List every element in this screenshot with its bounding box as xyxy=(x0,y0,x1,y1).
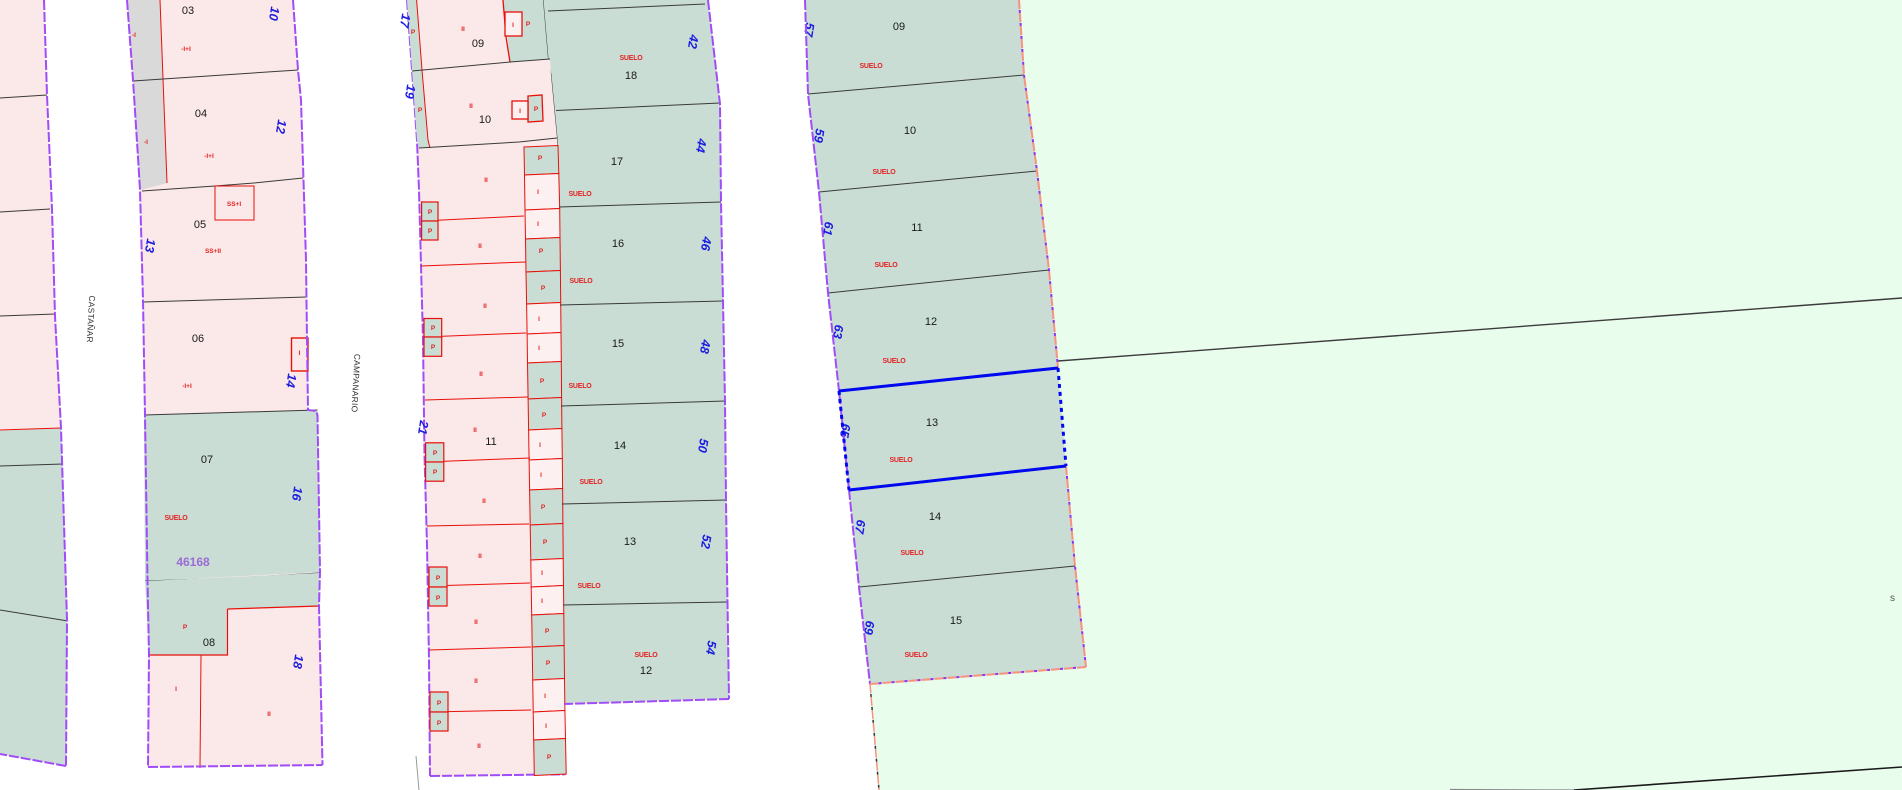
svg-text:-I+I: -I+I xyxy=(182,383,192,390)
svg-text:SUELO: SUELO xyxy=(900,550,924,557)
svg-text:21: 21 xyxy=(415,419,431,436)
svg-text:-I+I: -I+I xyxy=(181,46,191,53)
svg-text:SUELO: SUELO xyxy=(568,191,592,198)
svg-text:42: 42 xyxy=(685,33,701,50)
svg-text:P: P xyxy=(431,344,436,351)
svg-text:I: I xyxy=(544,693,546,700)
svg-text:16: 16 xyxy=(612,238,624,250)
svg-text:04: 04 xyxy=(195,108,207,120)
svg-text:14: 14 xyxy=(929,511,941,523)
svg-text:P: P xyxy=(436,575,441,582)
svg-text:I: I xyxy=(175,686,177,693)
svg-text:P: P xyxy=(543,539,548,546)
svg-text:11: 11 xyxy=(485,436,496,448)
svg-text:13: 13 xyxy=(624,536,636,548)
svg-text:SUELO: SUELO xyxy=(577,583,601,590)
svg-text:13: 13 xyxy=(926,417,938,429)
svg-text:P: P xyxy=(411,29,416,36)
svg-text:I: I xyxy=(519,108,521,115)
svg-text:SUELO: SUELO xyxy=(569,278,593,285)
svg-text:12: 12 xyxy=(925,316,937,328)
svg-text:SUELO: SUELO xyxy=(634,652,658,659)
svg-text:P: P xyxy=(541,285,546,292)
svg-text:48: 48 xyxy=(697,338,713,355)
svg-text:II: II xyxy=(267,711,271,718)
svg-text:SUELO: SUELO xyxy=(164,515,188,522)
svg-text:SUELO: SUELO xyxy=(579,479,603,486)
svg-text:P: P xyxy=(428,228,433,235)
svg-text:II: II xyxy=(474,619,478,626)
svg-text:SUELO: SUELO xyxy=(889,457,913,464)
svg-text:II: II xyxy=(478,243,482,250)
svg-text:P: P xyxy=(431,325,436,332)
svg-text:II: II xyxy=(483,303,487,310)
svg-text:II: II xyxy=(482,498,486,505)
svg-text:P: P xyxy=(433,450,438,457)
svg-text:II: II xyxy=(479,371,483,378)
svg-text:I: I xyxy=(538,316,540,323)
svg-text:P: P xyxy=(547,754,552,761)
svg-text:50: 50 xyxy=(695,438,711,454)
svg-text:I: I xyxy=(541,598,543,605)
svg-text:II: II xyxy=(473,427,477,434)
svg-text:15: 15 xyxy=(612,338,624,350)
svg-text:17: 17 xyxy=(611,156,623,168)
svg-text:-I+I: -I+I xyxy=(204,153,214,160)
svg-text:I: I xyxy=(299,350,301,357)
svg-text:SS+I: SS+I xyxy=(227,201,241,208)
svg-text:10: 10 xyxy=(266,6,282,22)
svg-text:SUELO: SUELO xyxy=(859,63,883,70)
svg-text:SS+II: SS+II xyxy=(205,248,221,255)
svg-text:II: II xyxy=(461,26,465,33)
svg-text:P: P xyxy=(542,412,547,419)
svg-text:P: P xyxy=(539,248,544,255)
svg-text:SUELO: SUELO xyxy=(872,169,896,176)
svg-text:-I: -I xyxy=(144,139,148,146)
svg-text:P: P xyxy=(526,21,531,28)
svg-text:P: P xyxy=(538,155,543,162)
svg-text:II: II xyxy=(474,678,478,685)
svg-text:P: P xyxy=(437,720,442,727)
svg-text:03: 03 xyxy=(182,5,194,17)
svg-text:09: 09 xyxy=(893,21,905,33)
svg-text:10: 10 xyxy=(904,125,916,137)
svg-text:09: 09 xyxy=(472,38,484,50)
svg-text:10: 10 xyxy=(479,114,491,126)
svg-text:06: 06 xyxy=(192,333,204,345)
svg-text:P: P xyxy=(545,628,550,635)
svg-text:P: P xyxy=(437,700,442,707)
svg-text:P: P xyxy=(418,107,423,114)
svg-text:I: I xyxy=(539,442,541,449)
svg-text:P: P xyxy=(433,469,438,476)
svg-text:II: II xyxy=(477,743,481,750)
svg-text:18: 18 xyxy=(625,70,637,82)
svg-text:SUELO: SUELO xyxy=(874,262,898,269)
svg-text:19: 19 xyxy=(402,84,418,100)
svg-text:s: s xyxy=(1890,593,1895,604)
svg-text:II: II xyxy=(484,177,488,184)
svg-text:I: I xyxy=(538,345,540,352)
svg-text:54: 54 xyxy=(703,640,719,656)
svg-text:P: P xyxy=(436,595,441,602)
svg-text:I: I xyxy=(537,189,539,196)
svg-text:14: 14 xyxy=(283,373,299,389)
svg-text:I: I xyxy=(545,723,547,730)
svg-text:18: 18 xyxy=(290,654,306,670)
svg-text:05: 05 xyxy=(194,219,206,231)
svg-text:P: P xyxy=(540,378,545,385)
svg-text:I: I xyxy=(541,570,543,577)
svg-text:15: 15 xyxy=(950,615,962,627)
svg-text:P: P xyxy=(183,624,188,631)
svg-text:P: P xyxy=(534,106,539,113)
svg-text:07: 07 xyxy=(201,454,213,466)
svg-text:11: 11 xyxy=(911,222,922,234)
svg-text:-I: -I xyxy=(132,32,136,39)
svg-text:SUELO: SUELO xyxy=(904,652,928,659)
svg-text:14: 14 xyxy=(614,440,626,452)
svg-text:44: 44 xyxy=(693,137,709,154)
svg-text:P: P xyxy=(428,209,433,216)
svg-text:I: I xyxy=(512,22,514,29)
svg-text:08: 08 xyxy=(203,637,215,649)
svg-text:SUELO: SUELO xyxy=(882,358,906,365)
svg-text:12: 12 xyxy=(640,665,652,677)
svg-text:I: I xyxy=(537,221,539,228)
svg-text:52: 52 xyxy=(698,534,714,550)
svg-text:46168: 46168 xyxy=(176,555,210,569)
svg-text:II: II xyxy=(469,103,473,110)
svg-text:13: 13 xyxy=(142,238,158,254)
svg-text:P: P xyxy=(546,660,551,667)
svg-text:SUELO: SUELO xyxy=(619,55,643,62)
svg-text:12: 12 xyxy=(273,119,289,135)
svg-text:P: P xyxy=(541,504,546,511)
svg-text:II: II xyxy=(478,553,482,560)
svg-text:SUELO: SUELO xyxy=(568,383,592,390)
svg-text:I: I xyxy=(540,472,542,479)
